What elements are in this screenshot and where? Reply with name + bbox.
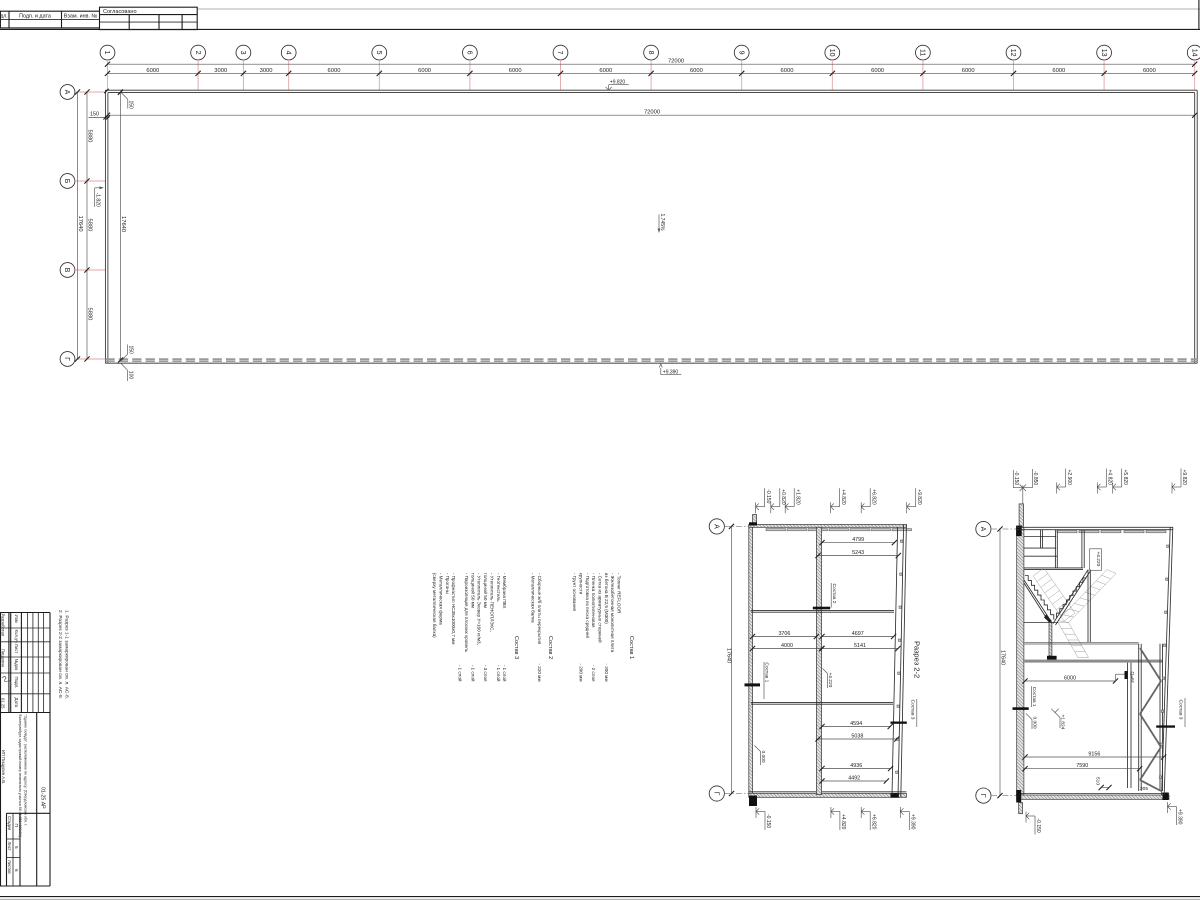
svg-text:Взам. инв. №: Взам. инв. №	[64, 13, 98, 19]
svg-text:72000: 72000	[668, 59, 684, 65]
svg-text:17640: 17640	[1000, 650, 1006, 665]
svg-text:+4.820: +4.820	[1107, 470, 1113, 486]
svg-text:- Профнастил НС35х1000х0,7 мм: - Профнастил НС35х1000х0,7 мм	[451, 573, 456, 645]
svg-text:- Железобетонная монолитная пл: - Железобетонная монолитная плита	[610, 573, 615, 653]
svg-text:А: А	[63, 90, 70, 95]
svg-text:4594: 4594	[850, 721, 862, 727]
svg-text:4697: 4697	[852, 631, 864, 637]
svg-text:толщиной 50 мм: толщиной 50 мм	[483, 573, 489, 608]
svg-text:7590: 7590	[1076, 763, 1088, 769]
svg-text:12: 12	[1009, 49, 1016, 57]
svg-text:5880: 5880	[86, 308, 92, 321]
svg-text:Дата: Дата	[14, 698, 19, 708]
svg-text:- 1 слой: - 1 слой	[496, 665, 502, 682]
svg-text:17640: 17640	[120, 216, 126, 232]
svg-text:- 1 слой: - 1 слой	[470, 665, 476, 682]
svg-text:4000: 4000	[781, 643, 793, 649]
svg-text:дл.: дл.	[0, 13, 8, 19]
svg-text:- 200 мм: - 200 мм	[579, 663, 584, 681]
svg-text:13: 13	[1100, 49, 1107, 57]
svg-text:+9.820: +9.820	[610, 80, 626, 86]
svg-text:6000: 6000	[418, 68, 431, 74]
svg-text:-1.820: -1.820	[94, 193, 100, 207]
svg-text:- Металлическая балка: - Металлическая балка	[531, 573, 536, 623]
svg-text:Состав 1: Состав 1	[628, 636, 634, 659]
svg-text:крупности: крупности	[579, 573, 584, 595]
svg-text:2. Разрез 2-2 замаркирован см.: 2. Разрез 2-2 замаркирован см. л. АС-8.	[57, 610, 63, 699]
svg-text:150: 150	[90, 112, 99, 118]
svg-text:- 1 слой: - 1 слой	[502, 665, 508, 682]
svg-text:1.745%: 1.745%	[659, 214, 665, 232]
svg-text:- 200 мм: - 200 мм	[604, 663, 609, 681]
svg-text:2: 2	[194, 51, 201, 55]
svg-text:+9.390: +9.390	[1177, 809, 1183, 825]
svg-text:Состав 1: Состав 1	[1031, 687, 1037, 707]
svg-text:из бетона В 22,5 (М300): из бетона В 22,5 (М300)	[604, 573, 609, 624]
svg-text:- Сборные ж/б плиты перекрытия: - Сборные ж/б плиты перекрытия	[537, 573, 542, 645]
svg-text:-0.150: -0.150	[765, 814, 771, 828]
svg-text:- Подготовка из песка средней: - Подготовка из песка средней	[585, 573, 591, 639]
svg-text:1. Разрез 1-1 замаркирован см.: 1. Разрез 1-1 замаркирован см. л. АС-8.	[64, 610, 70, 699]
svg-text:- Металлическая ферма: - Металлическая ферма	[439, 573, 444, 625]
svg-text:- Геотекстиль: - Геотекстиль	[496, 573, 501, 602]
svg-text:1: 1	[103, 51, 110, 55]
svg-text:Стадия: Стадия	[7, 816, 12, 830]
svg-text:6000: 6000	[962, 68, 975, 74]
svg-text:+6.820: +6.820	[870, 814, 876, 830]
svg-text:150: 150	[128, 101, 134, 110]
svg-text:+4.220: +4.220	[827, 673, 833, 688]
svg-text:-0.850: -0.850	[1032, 471, 1038, 485]
svg-text:6: 6	[14, 869, 19, 872]
svg-text:А: А	[979, 527, 986, 532]
svg-text:- 2 слоя: - 2 слоя	[591, 665, 596, 682]
svg-text:Г: Г	[979, 794, 986, 798]
svg-text:+1.820: +1.820	[794, 489, 800, 505]
svg-text:6000: 6000	[146, 68, 159, 74]
svg-text:- 1 слой: - 1 слой	[458, 665, 464, 682]
svg-text:+4.820: +4.820	[840, 814, 846, 830]
svg-text:ИП Пищулин А.В.: ИП Пищулин А.В.	[1, 750, 6, 784]
svg-text:-0.150: -0.150	[1013, 471, 1019, 485]
svg-text:9: 9	[737, 51, 744, 55]
svg-text:3706: 3706	[778, 631, 790, 637]
svg-text:№док: №док	[14, 659, 19, 671]
svg-text:6000: 6000	[690, 68, 703, 74]
svg-text:Г: Г	[713, 792, 720, 796]
svg-text:- Прогоны: - Прогоны	[445, 573, 450, 594]
svg-text:П: П	[14, 824, 19, 827]
svg-text:+5.820: +5.820	[1122, 470, 1128, 486]
svg-text:10: 10	[828, 49, 835, 57]
svg-text:Г: Г	[63, 357, 70, 361]
svg-text:Состав 3: Состав 3	[909, 700, 915, 720]
svg-text:8: 8	[647, 51, 654, 55]
svg-text:- Пароизоляция для плоских кро: - Пароизоляция для плоских кровель	[464, 573, 469, 653]
svg-text:Разрез 2-2: Разрез 2-2	[913, 641, 922, 678]
svg-text:17640: 17640	[725, 648, 731, 663]
svg-text:6000: 6000	[599, 68, 612, 74]
svg-text:- 3 слоя: - 3 слоя	[483, 665, 488, 682]
svg-text:Кол.уч: Кол.уч	[14, 630, 19, 643]
svg-text:Q=6т: Q=6т	[1129, 672, 1135, 684]
svg-text:17640: 17640	[77, 216, 83, 232]
svg-text:01.25: 01.25	[1, 698, 6, 709]
svg-text:Подп.: Подп.	[14, 677, 19, 689]
svg-text:5243: 5243	[852, 550, 864, 556]
svg-text:150: 150	[127, 346, 133, 355]
svg-text:В: В	[63, 268, 70, 273]
svg-text:+9.820: +9.820	[916, 489, 922, 505]
svg-text:Пищулин: Пищулин	[1, 649, 6, 668]
svg-text:3000: 3000	[214, 68, 227, 74]
svg-text:-0.150: -0.150	[765, 489, 771, 503]
svg-text:- Утеплитель Эковер У=160 кг/м: - Утеплитель Эковер У=160 кг/м3,	[477, 573, 482, 645]
svg-text:6000: 6000	[871, 68, 884, 74]
svg-text:Согласовано: Согласовано	[103, 9, 137, 15]
svg-text:5: 5	[375, 51, 382, 55]
svg-text:Лист: Лист	[14, 644, 19, 654]
svg-text:5880: 5880	[86, 219, 92, 232]
svg-text:14: 14	[1190, 49, 1197, 57]
svg-text:Листов: Листов	[7, 860, 12, 874]
svg-text:+1.824: +1.824	[1060, 715, 1066, 730]
svg-text:Лист: Лист	[7, 842, 12, 851]
svg-text:5: 5	[14, 846, 19, 849]
svg-text:+9.390: +9.390	[910, 814, 916, 830]
svg-text:+2.900: +2.900	[1066, 470, 1072, 486]
svg-text:72000: 72000	[644, 110, 660, 116]
svg-text:Состав 1: Состав 1	[764, 662, 770, 682]
svg-text:0.000: 0.000	[1032, 717, 1038, 729]
svg-text:5880: 5880	[86, 130, 92, 143]
svg-text:6000: 6000	[1143, 68, 1156, 74]
svg-text:Состав 2: Состав 2	[547, 636, 553, 659]
svg-text:4799: 4799	[852, 537, 864, 543]
svg-text:- Сетка из арматурных стержней: - Сетка из арматурных стержней	[598, 573, 604, 643]
svg-text:6000: 6000	[328, 68, 341, 74]
svg-text:3: 3	[239, 51, 246, 55]
svg-text:+4.820: +4.820	[840, 489, 846, 505]
svg-text:(сверху металлическая балка): (сверху металлическая балка)	[432, 573, 437, 638]
svg-text:Состав 3: Состав 3	[1178, 700, 1184, 720]
svg-text:4936: 4936	[850, 763, 862, 769]
svg-text:Изм: Изм	[14, 615, 19, 623]
svg-text:- Топинг REFLOOR: - Топинг REFLOOR	[617, 573, 622, 614]
svg-text:0.000: 0.000	[760, 751, 766, 763]
svg-text:Подп. и дата: Подп. и дата	[19, 13, 51, 19]
svg-text:6000: 6000	[781, 68, 794, 74]
svg-text:5038: 5038	[851, 733, 863, 739]
svg-text:+9.820: +9.820	[1181, 470, 1187, 486]
svg-text:+6.820: +6.820	[870, 489, 876, 505]
svg-text:01-25 АР: 01-25 АР	[40, 787, 46, 809]
svg-text:9156: 9156	[1088, 751, 1100, 757]
svg-text:"Здание склада", расположенное: "Здание склада", расположенное по адресу…	[24, 715, 28, 826]
svg-text:100: 100	[127, 371, 133, 380]
svg-text:7: 7	[556, 51, 563, 55]
svg-text:4492: 4492	[848, 775, 860, 781]
svg-text:+4.220: +4.220	[1095, 552, 1101, 567]
svg-text:Б: Б	[63, 179, 70, 184]
svg-text:6000: 6000	[509, 68, 522, 74]
svg-text:-0.150: -0.150	[1035, 819, 1041, 833]
svg-text:6: 6	[466, 51, 473, 55]
svg-text:4: 4	[284, 51, 291, 55]
svg-text:Разработал: Разработал	[1, 614, 6, 637]
svg-text:6000: 6000	[1064, 675, 1076, 681]
svg-text:Состав 3: Состав 3	[513, 636, 519, 659]
svg-text:11: 11	[919, 49, 926, 56]
svg-text:- Пленка полиэтиленовая: - Пленка полиэтиленовая	[591, 573, 596, 628]
svg-text:Состав 2: Состав 2	[831, 584, 837, 604]
svg-text:3000: 3000	[260, 68, 273, 74]
svg-text:толщиной 50 мм: толщиной 50 мм	[470, 573, 476, 608]
svg-text:- Утеплитель ПЕНОПЛЭКС,: - Утеплитель ПЕНОПЛЭКС,	[489, 573, 494, 632]
svg-text:+9.390: +9.390	[663, 370, 679, 376]
svg-text:- Грунт основания: - Грунт основания	[572, 573, 577, 612]
svg-text:205: 205	[1140, 786, 1148, 792]
svg-text:5141: 5141	[854, 643, 866, 649]
svg-text:А: А	[713, 524, 720, 529]
svg-text:510: 510	[1095, 777, 1101, 785]
svg-text:- 220 мм: - 220 мм	[537, 663, 542, 681]
svg-text:6000: 6000	[1052, 68, 1065, 74]
svg-text:- Мембрана ПВХ: - Мембрана ПВХ	[502, 573, 507, 609]
